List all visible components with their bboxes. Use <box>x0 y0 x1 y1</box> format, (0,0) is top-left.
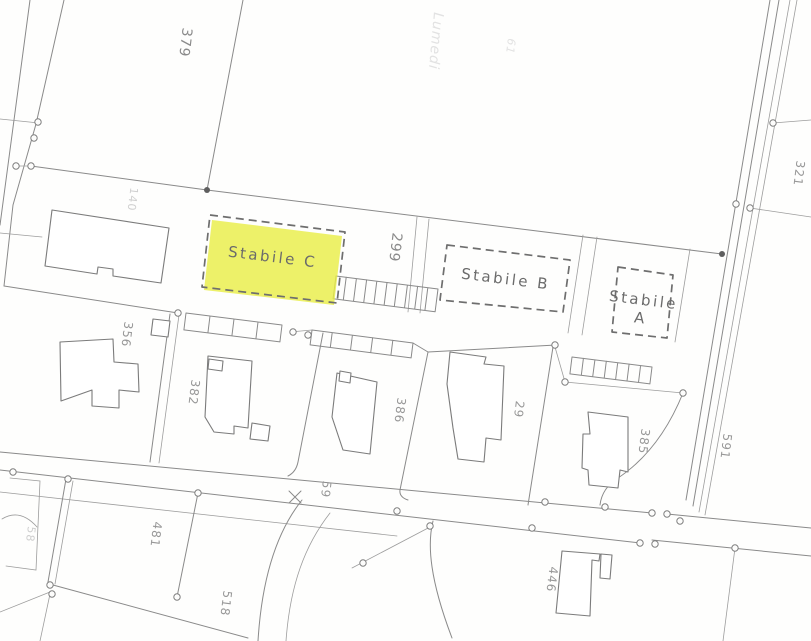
survey-marker <box>770 120 776 126</box>
boundary-leader-385 <box>555 347 683 393</box>
road-right-line-2 <box>693 0 779 506</box>
boundary-mid-left <box>4 286 178 313</box>
boundary-tick-left-2 <box>0 233 42 237</box>
survey-marker <box>47 582 53 588</box>
small-annex <box>250 423 270 441</box>
lane-curve-right <box>286 513 330 641</box>
survey-marker <box>677 518 683 524</box>
building-385 <box>582 412 628 488</box>
survey-marker <box>529 525 535 531</box>
road-right-line-4 <box>705 0 797 515</box>
labels: 379 140 299 321 356 382 386 29 385 591 5… <box>23 12 807 618</box>
survey-marker <box>290 329 296 335</box>
survey-marker <box>649 510 655 516</box>
survey-marker <box>732 545 738 551</box>
building-446 <box>556 551 600 616</box>
parcel-label-321: 321 <box>790 160 807 187</box>
parking-strip-385 <box>570 357 652 384</box>
road-exit-top <box>667 514 811 528</box>
survey-marker-filled <box>204 187 210 193</box>
survey-marker <box>747 205 753 211</box>
survey-marker <box>13 163 19 169</box>
parcel-label-385: 385 <box>635 428 652 455</box>
survey-marker <box>305 332 311 338</box>
parcel-label-518: 518 <box>217 590 234 617</box>
divider-481-518 <box>177 493 198 597</box>
divider-382-386 <box>288 333 323 476</box>
divider-b-a-2 <box>582 237 597 335</box>
survey-marker <box>175 310 181 316</box>
road-right-line-3 <box>699 0 790 512</box>
survey-marker <box>562 379 568 385</box>
building-382-annex <box>208 359 223 371</box>
parcel-label-386: 386 <box>391 397 408 424</box>
survey-marker <box>664 511 670 517</box>
ghost-number: 61 <box>503 38 518 55</box>
parcel-label-481: 481 <box>147 521 164 548</box>
parcel-label-59: 59 <box>318 480 334 499</box>
divider-386-29 <box>400 352 428 500</box>
path-bottom-left-2 <box>55 481 73 584</box>
parcel-outline-58 <box>6 478 40 570</box>
divider-356-382-2 <box>159 315 179 463</box>
parcel-label-299: 299 <box>385 232 405 263</box>
survey-marker <box>28 163 34 169</box>
parcel-label-140: 140 <box>125 187 141 212</box>
parcel-label-446: 446 <box>543 566 560 593</box>
parking-strip-lower-mid <box>310 330 413 358</box>
survey-markers <box>10 119 776 600</box>
boundary-bottom-left-diag <box>0 592 50 612</box>
boundary-mid-right <box>413 343 556 352</box>
divider-299-b-2 <box>420 219 429 313</box>
parcel-label-382: 382 <box>185 379 202 406</box>
building-upper-left <box>45 210 169 283</box>
parcel-label-379: 379 <box>175 27 195 58</box>
survey-marker <box>10 469 16 475</box>
divider-299-b-1 <box>408 217 417 312</box>
survey-marker-filled <box>719 251 725 257</box>
survey-marker <box>35 119 41 125</box>
building-446-annex <box>600 554 612 579</box>
x-marker <box>289 491 301 503</box>
road-right-line-1 <box>686 0 770 500</box>
boundary-tick-left-1 <box>0 119 39 123</box>
boundary-vertical-bottom-right <box>723 548 735 641</box>
survey-marker <box>360 560 366 566</box>
building-356 <box>60 339 139 408</box>
parcel-label-58: 58 <box>23 526 38 543</box>
leader-right-1 <box>773 120 811 123</box>
parking-strip-stabile-c <box>333 276 438 312</box>
parking-strip-lower-left <box>184 313 282 342</box>
survey-marker <box>542 499 548 505</box>
survey-marker <box>552 342 558 348</box>
stabile-a-label-line2: A <box>633 308 648 327</box>
boundary-top-diagonal <box>207 0 243 190</box>
parcel-label-356: 356 <box>118 321 135 348</box>
divider-b-a-1 <box>568 235 583 333</box>
boundary-446-left-curve <box>430 521 452 638</box>
survey-marker <box>602 504 608 510</box>
survey-marker <box>31 135 37 141</box>
wavy-contour <box>2 515 37 527</box>
building-386 <box>332 373 377 454</box>
path-bottom-left-1 <box>48 479 66 582</box>
stabile-outlines <box>202 215 673 338</box>
survey-marker <box>65 476 71 482</box>
map-canvas: 379 140 299 321 356 382 386 29 385 591 5… <box>0 0 811 641</box>
stabile-b-label: Stabile B <box>460 265 551 294</box>
site-plan-map: 379 140 299 321 356 382 386 29 385 591 5… <box>0 0 811 641</box>
survey-marker <box>427 523 433 529</box>
parcel-label-591: 591 <box>717 433 734 460</box>
survey-marker <box>174 594 180 600</box>
road-left-edge-line <box>0 0 30 225</box>
path-bottom-left-3 <box>40 594 50 641</box>
survey-marker <box>652 541 658 547</box>
building-29 <box>447 352 504 462</box>
divider-29-385 <box>528 347 553 505</box>
small-structure <box>151 319 170 337</box>
ghost-handwriting: Lumedi <box>425 12 446 71</box>
survey-marker <box>195 490 201 496</box>
parcel-label-29: 29 <box>511 400 527 419</box>
building-386-annex <box>339 371 351 383</box>
survey-marker <box>49 591 55 597</box>
survey-marker <box>637 540 643 546</box>
survey-marker <box>733 201 739 207</box>
survey-marker <box>680 390 686 396</box>
survey-marker <box>394 508 400 514</box>
